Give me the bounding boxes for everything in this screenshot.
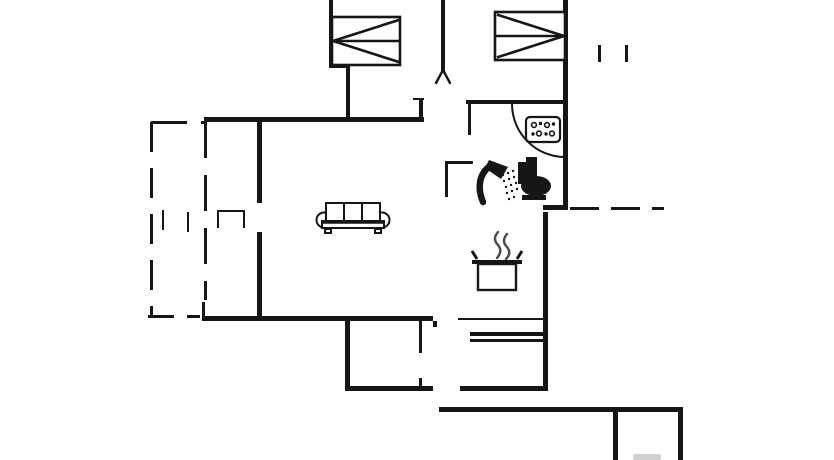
wall-segment (419, 321, 422, 353)
door-swing-arc (511, 104, 565, 158)
wall-segment (202, 316, 433, 321)
wall-segment (257, 122, 262, 203)
bed-right-icon (495, 12, 565, 60)
wall-segment (419, 378, 422, 391)
wall-segment (678, 412, 683, 460)
wall-segment (329, 0, 333, 68)
terrace-dashed-line (148, 315, 200, 318)
terrace-dashed-line (570, 207, 664, 210)
wall-end-fork (436, 70, 450, 83)
wall-segment (439, 407, 683, 412)
wall-segment (598, 45, 601, 62)
wall-segment (543, 212, 548, 391)
sofa-icon (317, 203, 390, 233)
shower-icon (480, 160, 519, 202)
wall-segment (543, 205, 568, 210)
fireplace-box (217, 210, 245, 228)
wall-segment (460, 386, 548, 391)
wall-segment (470, 339, 545, 342)
wall-segment (346, 64, 350, 122)
wall-segment (204, 117, 424, 122)
wall-segment (187, 212, 189, 232)
terrace-dashed-line (150, 122, 153, 315)
wall-segment (419, 100, 423, 119)
steam-icon (495, 232, 509, 259)
bed-left-icon (332, 17, 400, 65)
wall-segment (445, 161, 448, 197)
terrace-dashed-line (204, 122, 207, 300)
cropped-mark (633, 454, 661, 460)
terrace-dashed-line (151, 121, 204, 124)
wall-segment (445, 161, 473, 164)
toilet-icon (518, 157, 551, 200)
wall-segment (433, 321, 437, 327)
furniture-icon-layer (0, 0, 834, 460)
wall-segment (257, 232, 262, 318)
wall-segment (468, 104, 471, 135)
wall-segment (470, 332, 545, 336)
wall-segment (458, 318, 545, 320)
wall-segment (162, 210, 164, 230)
wall-segment (345, 321, 350, 387)
wall-segment (625, 45, 628, 62)
wall-segment (441, 0, 445, 71)
cooking-pot-icon (472, 232, 522, 290)
wall-segment (613, 412, 618, 460)
floor-plan (0, 0, 834, 460)
